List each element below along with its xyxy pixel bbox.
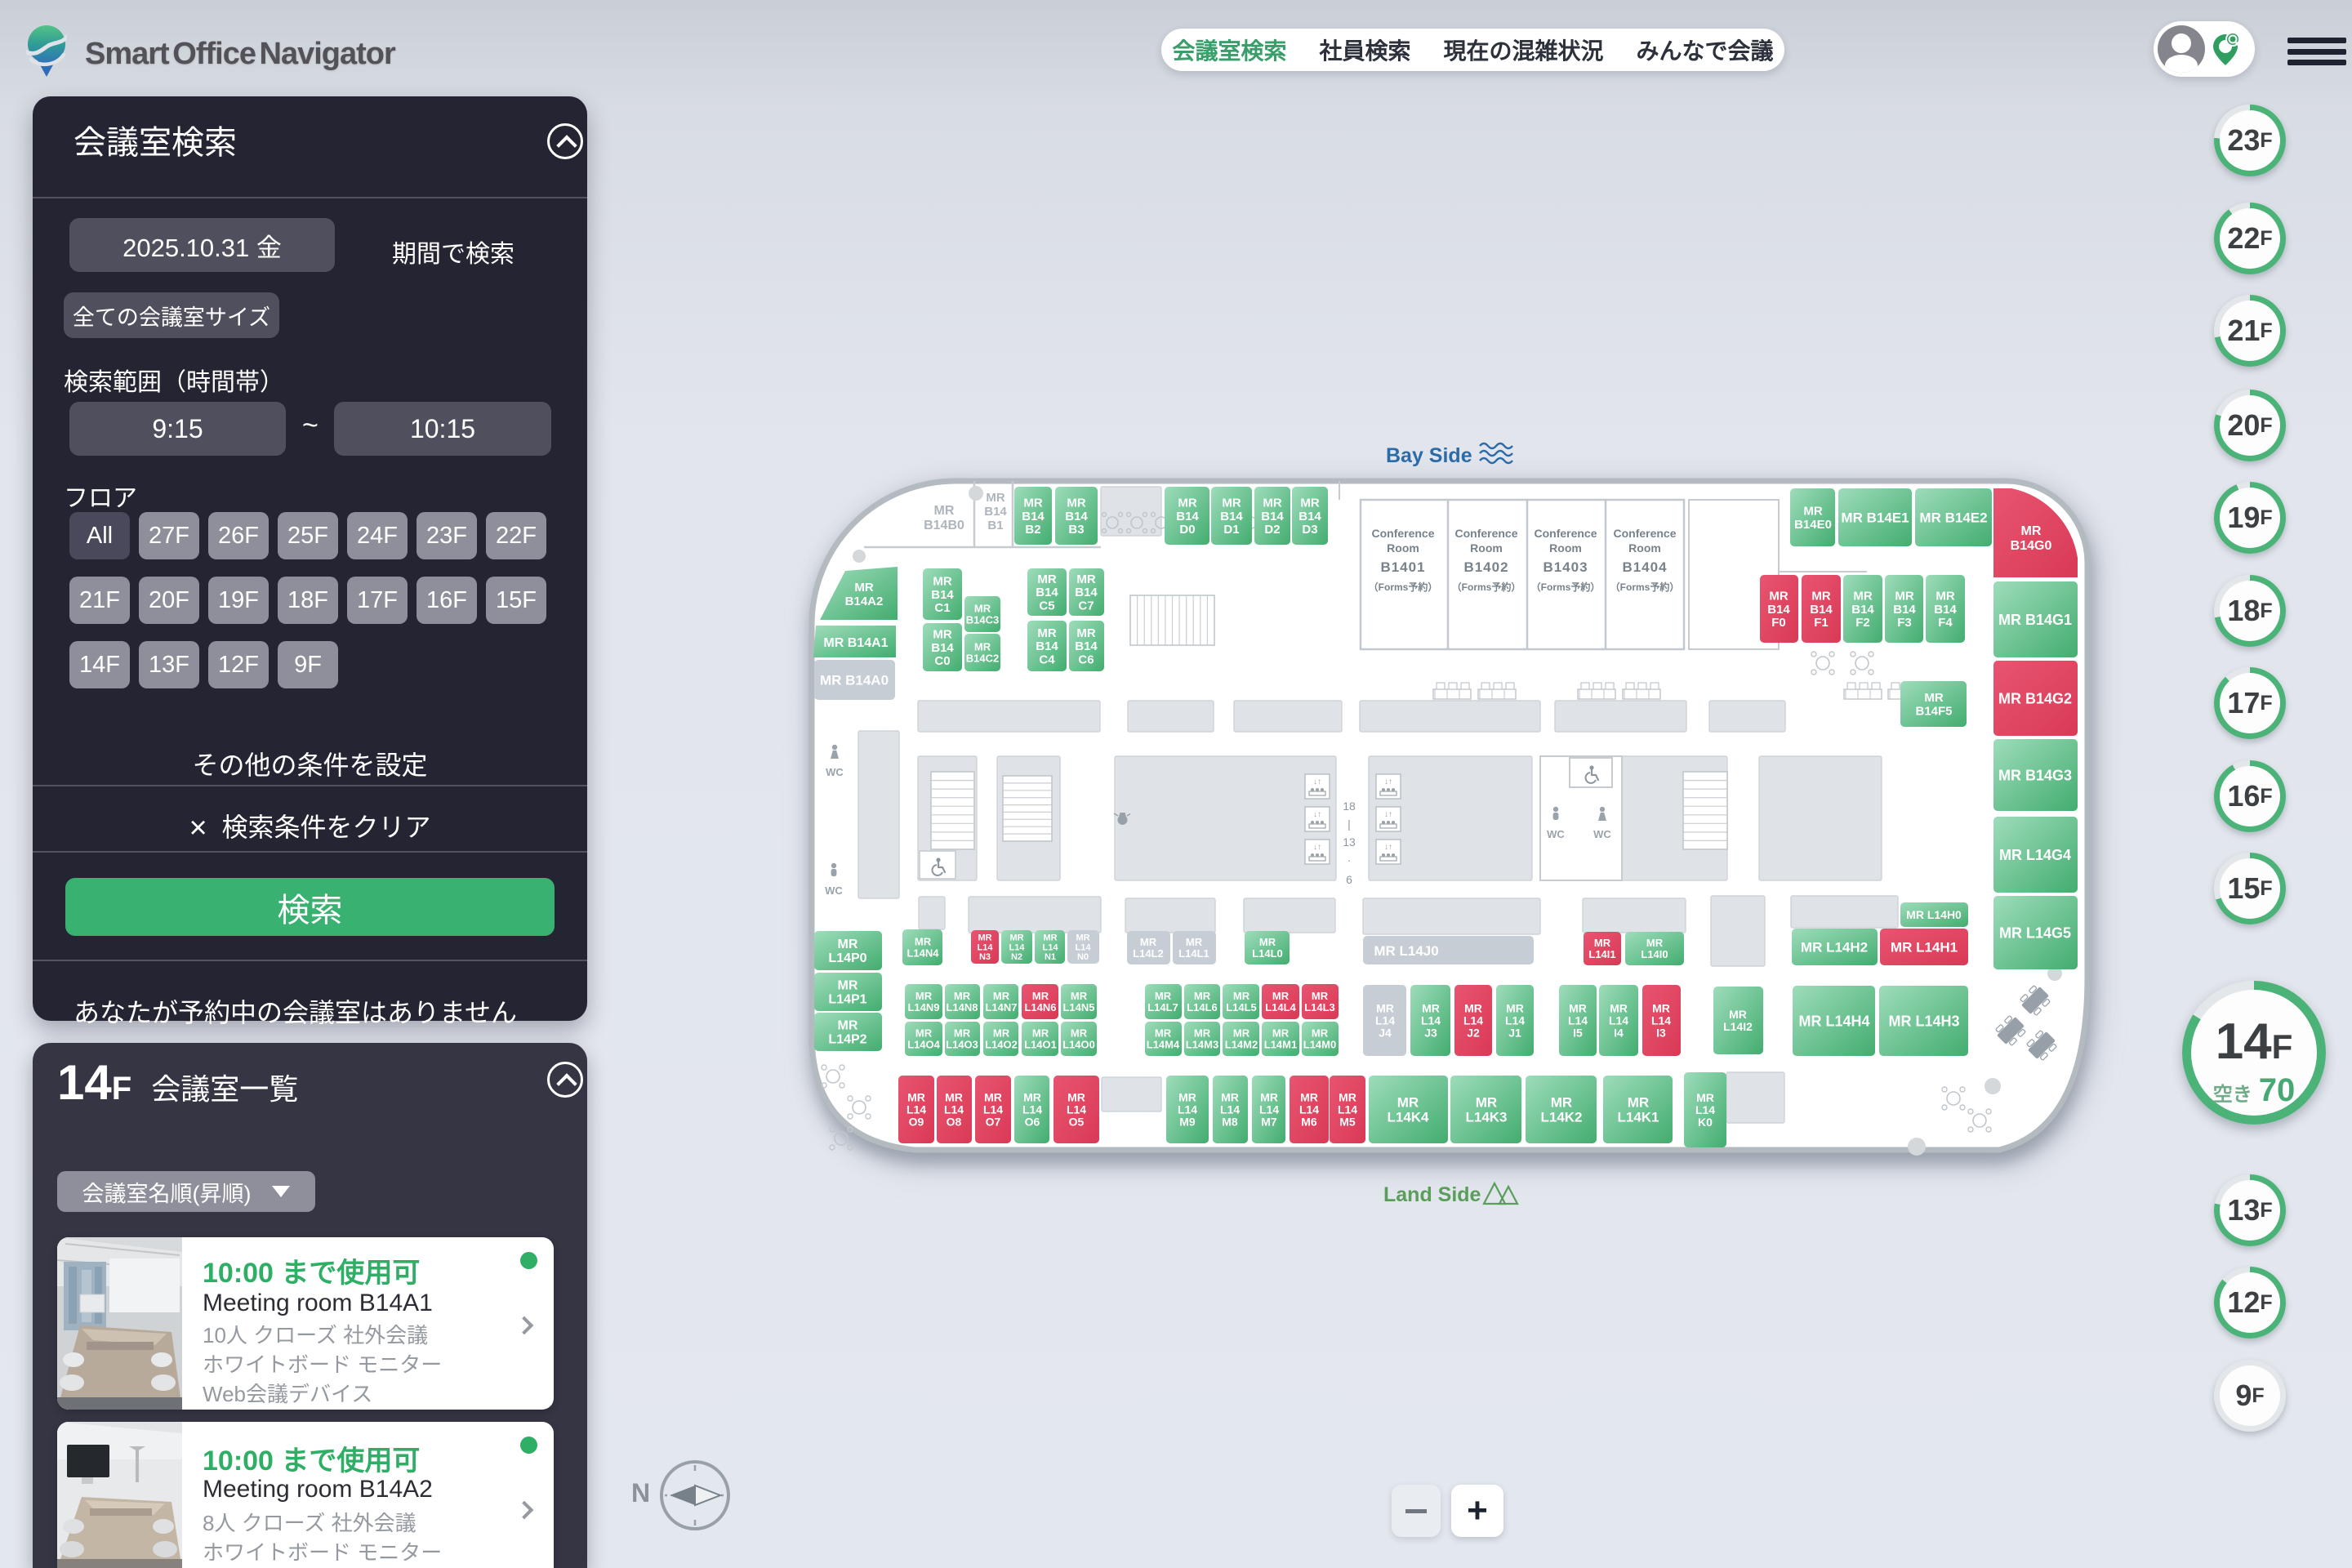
- svg-text:WC: WC: [826, 766, 844, 778]
- svg-text:MRL14O6: MRL14O6: [1022, 1090, 1042, 1128]
- svg-text:MR B14A0: MR B14A0: [820, 673, 889, 688]
- svg-text:MRL14O9: MRL14O9: [906, 1090, 926, 1128]
- svg-text:MRL14M6: MRL14M6: [1299, 1090, 1319, 1128]
- svg-text:MR L14H0: MR L14H0: [1906, 908, 1962, 921]
- svg-text:MRL14M5: MRL14M5: [1338, 1090, 1357, 1128]
- svg-text:↓↑: ↓↑: [1313, 843, 1321, 852]
- svg-text:↓↑: ↓↑: [1313, 777, 1321, 786]
- svg-text:MR B14E1: MR B14E1: [1841, 510, 1909, 526]
- svg-text:MRL14M9: MRL14M9: [1178, 1090, 1197, 1128]
- svg-text:MR L14H2: MR L14H2: [1801, 940, 1868, 955]
- svg-text:Land Side: Land Side: [1383, 1183, 1481, 1206]
- svg-text:WC: WC: [825, 884, 843, 897]
- svg-text:MR B14G3: MR B14G3: [1998, 767, 2072, 783]
- svg-text:MR L14H1: MR L14H1: [1891, 940, 1958, 955]
- svg-text:MRL14O7: MRL14O7: [983, 1090, 1003, 1128]
- svg-text:↓↑: ↓↑: [1313, 810, 1321, 819]
- svg-text:MRL14O8: MRL14O8: [944, 1090, 964, 1128]
- svg-text:MR B14A1: MR B14A1: [823, 636, 888, 650]
- svg-text:↓↑: ↓↑: [1384, 810, 1392, 819]
- svg-text:MRL14K0: MRL14K0: [1695, 1091, 1715, 1129]
- svg-text:MR B14G1: MR B14G1: [1998, 612, 2072, 628]
- svg-text:Bay Side: Bay Side: [1386, 444, 1472, 467]
- svg-text:MR L14J0: MR L14J0: [1374, 943, 1438, 959]
- svg-text:↓↑: ↓↑: [1384, 843, 1392, 852]
- svg-text:WC: WC: [1593, 828, 1611, 840]
- svg-text:MR L14H3: MR L14H3: [1888, 1013, 1959, 1029]
- svg-text:MR L14G5: MR L14G5: [1999, 924, 2071, 941]
- svg-text:MRL14O5: MRL14O5: [1067, 1090, 1086, 1128]
- svg-text:MR L14G4: MR L14G4: [1999, 847, 2071, 863]
- svg-text:MR L14H4: MR L14H4: [1798, 1013, 1869, 1029]
- svg-text:MRL14M8: MRL14M8: [1220, 1090, 1240, 1128]
- svg-text:WC: WC: [1547, 828, 1565, 840]
- svg-text:MRL14M7: MRL14M7: [1259, 1090, 1279, 1128]
- svg-text:↓↑: ↓↑: [1384, 777, 1392, 786]
- svg-text:MR B14G2: MR B14G2: [1998, 690, 2072, 706]
- svg-text:MR B14E2: MR B14E2: [1919, 510, 1987, 526]
